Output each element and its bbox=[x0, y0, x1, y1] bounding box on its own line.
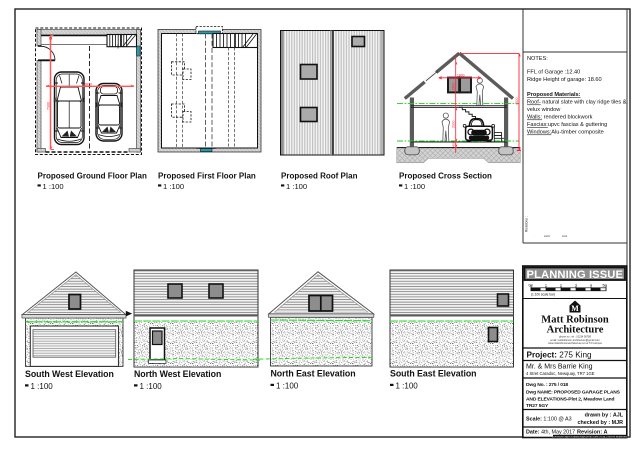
svg-text:Roof- natural slate with clay: Roof- natural slate with clay ridge tile… bbox=[527, 100, 627, 106]
svg-text:checked by : MJR: checked by : MJR bbox=[577, 420, 623, 426]
svg-text:1 :100: 1 :100 bbox=[404, 182, 425, 191]
svg-text:Ridge Height of garage: 18.60: Ridge Height of garage: 18.60 bbox=[527, 77, 602, 83]
svg-text:AND ELEVATIONS-Plot 2, Meadow: AND ELEVATIONS-Plot 2, Meadow Land bbox=[526, 397, 615, 403]
svg-text:COPYRIGHT MATT ROBINSON ARCHIT: COPYRIGHT MATT ROBINSON ARCHITECTURE LTD… bbox=[552, 435, 628, 438]
svg-text:South East Elevation: South East Elevation bbox=[390, 369, 477, 379]
svg-text:Proposed Ground Floor Plan: Proposed Ground Floor Plan bbox=[38, 172, 147, 181]
svg-text:Mr. & Mrs Barrie King: Mr. & Mrs Barrie King bbox=[526, 364, 593, 371]
svg-text:Fascias:upvc fascias & gutteri: Fascias:upvc fascias & guttering bbox=[527, 122, 607, 128]
svg-text:Scale: 1:100 @ A3: Scale: 1:100 @ A3 bbox=[526, 417, 572, 423]
svg-text:xx/xx: xx/xx bbox=[544, 234, 551, 238]
svg-text:NOTES:: NOTES: bbox=[527, 56, 548, 62]
svg-text:www.mattrobinsonarchitecture.c: www.mattrobinsonarchitecture.co.uk T2 Ca… bbox=[548, 342, 602, 345]
svg-text:FFL of Garage :12.40: FFL of Garage :12.40 bbox=[527, 70, 580, 76]
svg-text:1 :100: 1 :100 bbox=[140, 382, 163, 391]
svg-text:450: 450 bbox=[452, 142, 456, 147]
svg-text:1 :100: 1 :100 bbox=[163, 182, 184, 191]
svg-text:2600: 2600 bbox=[452, 82, 456, 90]
svg-text:Revision: A: Revision: A bbox=[577, 430, 608, 436]
svg-text:Project: 275 King: Project: 275 King bbox=[527, 351, 593, 360]
svg-text:1 :100: 1 :100 bbox=[31, 382, 54, 391]
svg-text:TR27 5GY: TR27 5GY bbox=[526, 403, 549, 409]
svg-text:Proposed Materials:: Proposed Materials: bbox=[527, 92, 581, 98]
svg-text:Proposed First Floor Plan: Proposed First Floor Plan bbox=[158, 172, 256, 181]
svg-text:Dwg NAME: PROPOSED GARAGE PL: Dwg NAME: PROPOSED GARAGE PLANS bbox=[526, 390, 621, 396]
svg-text:North East Elevation: North East Elevation bbox=[271, 369, 356, 379]
svg-text:4870: 4870 bbox=[84, 82, 92, 86]
svg-text:M: M bbox=[571, 304, 579, 313]
svg-text:1 :100: 1 :100 bbox=[276, 382, 299, 391]
svg-text:South West Elevation: South West Elevation bbox=[25, 369, 114, 379]
svg-text:(1:100 scale bar): (1:100 scale bar) bbox=[531, 293, 555, 297]
svg-text:Dwg No. : 275 / 018: Dwg No. : 275 / 018 bbox=[526, 382, 568, 388]
svg-text:2300: 2300 bbox=[452, 120, 456, 128]
svg-text:Proposed Roof Plan: Proposed Roof Plan bbox=[281, 172, 358, 181]
svg-text:7300: 7300 bbox=[46, 102, 50, 110]
svg-text:1 :100: 1 :100 bbox=[43, 182, 64, 191]
svg-text:North West Elevation: North West Elevation bbox=[134, 369, 221, 379]
svg-text:1800: 1800 bbox=[457, 73, 465, 77]
svg-text:Date: 4th, May 2017: Date: 4th, May 2017 bbox=[526, 430, 575, 436]
svg-text:Walls: rendered blockwork: Walls: rendered blockwork bbox=[527, 115, 593, 121]
svg-text:4300: 4300 bbox=[515, 97, 519, 105]
svg-text:Proposed Cross Section: Proposed Cross Section bbox=[399, 172, 492, 181]
svg-text:drawn by : AJL: drawn by : AJL bbox=[585, 413, 624, 419]
svg-text:xxxx: xxxx bbox=[562, 235, 568, 238]
svg-text:5m: 5m bbox=[603, 284, 608, 288]
svg-text:Architecture: Architecture bbox=[547, 325, 604, 336]
svg-text:1 :100: 1 :100 bbox=[286, 182, 307, 191]
svg-text:1 :100: 1 :100 bbox=[396, 382, 419, 391]
svg-text:velux window: velux window bbox=[527, 107, 561, 113]
svg-text:4 Stret Caradoc, Newquay, TR7: 4 Stret Caradoc, Newquay, TR7 1GE bbox=[526, 371, 595, 376]
svg-text:Revisions :: Revisions : bbox=[525, 216, 529, 232]
svg-text:PLANNING ISSUE: PLANNING ISSUE bbox=[527, 269, 624, 281]
svg-text:Windows:Alu-timber composite: Windows:Alu-timber composite bbox=[527, 130, 604, 136]
